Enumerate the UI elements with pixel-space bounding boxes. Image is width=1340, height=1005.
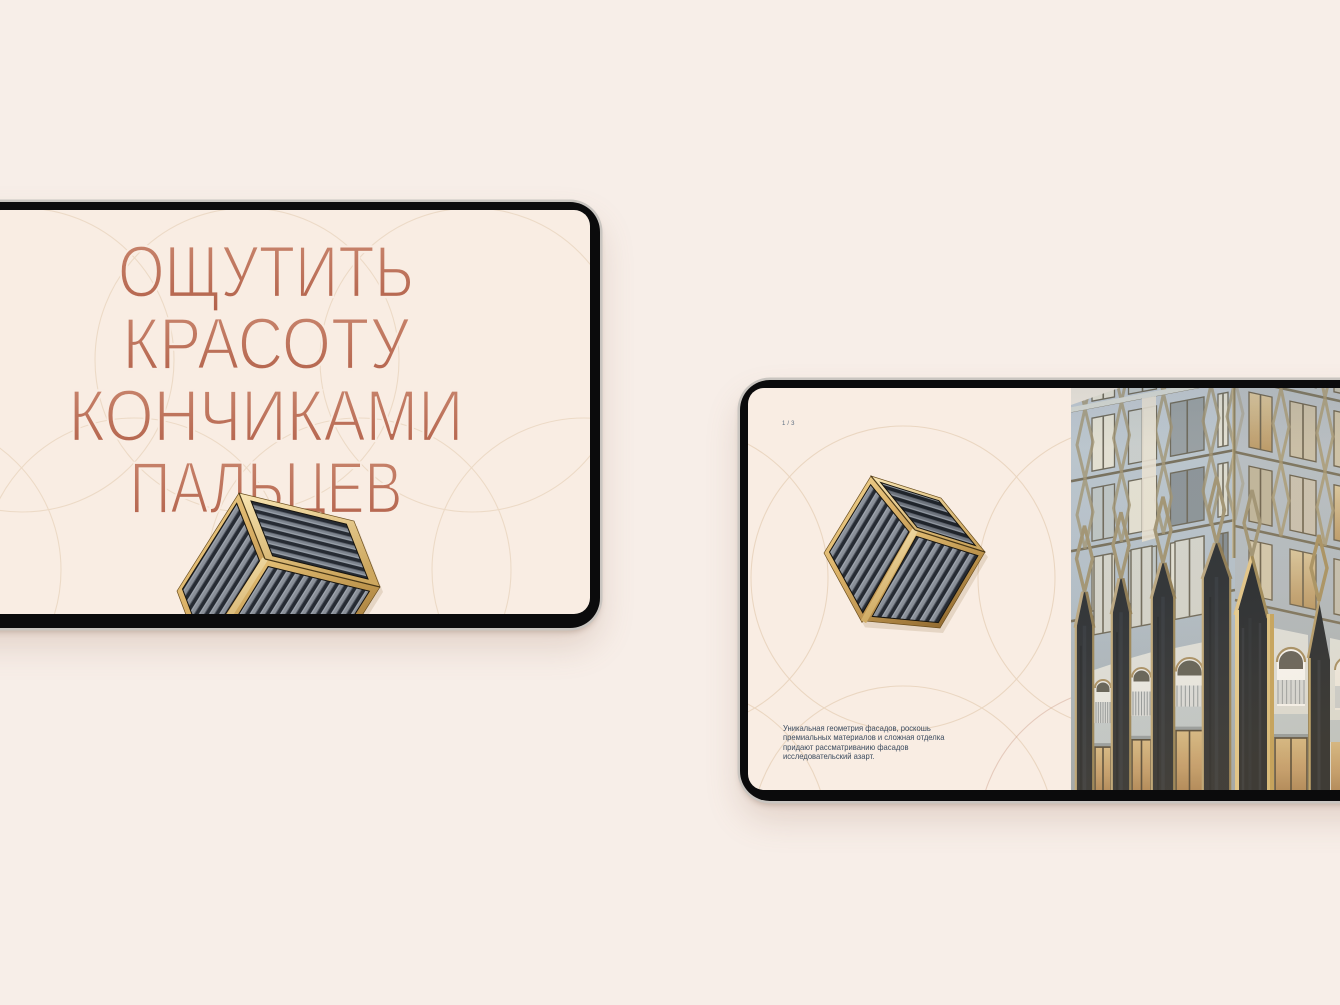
- svg-text:ОЩУТИТЬ: ОЩУТИТЬ: [118, 232, 414, 313]
- svg-text:КРАСОТУ: КРАСОТУ: [123, 304, 411, 385]
- svg-text:КОНЧИКАМИ: КОНЧИКАМИ: [69, 376, 464, 457]
